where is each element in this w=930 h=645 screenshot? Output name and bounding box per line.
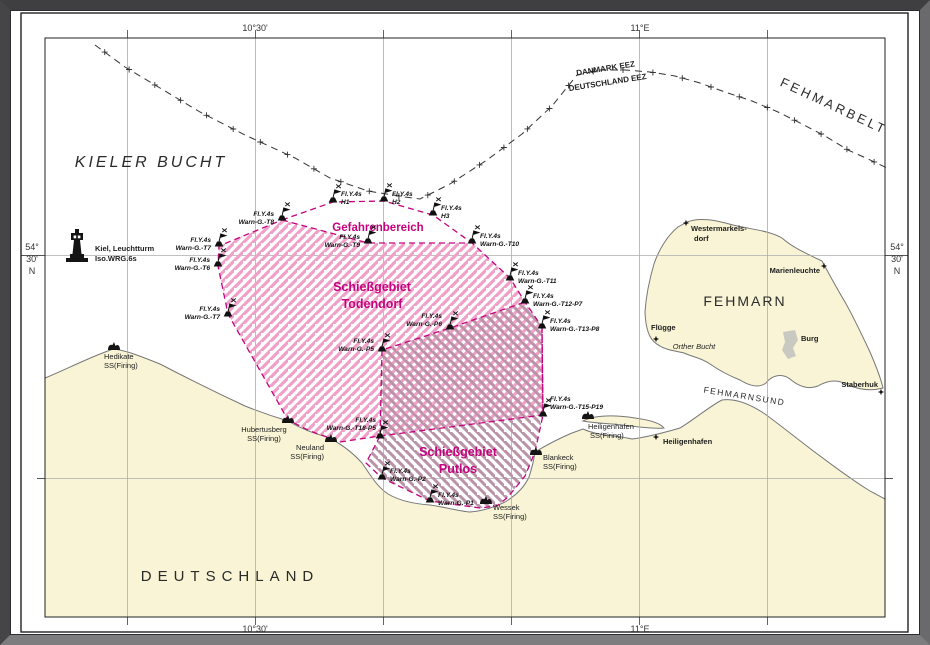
station-type: SS(Firing): [590, 431, 624, 440]
buoy-char: Fl.Y.4s: [441, 205, 462, 212]
buoy-name: Warn-G.-T18-P5: [327, 425, 377, 432]
station-name: Wessek: [493, 503, 520, 512]
buoy-h1: Fl.Y.4s H1: [330, 185, 362, 207]
buoy-name: Warn-G.-T13-P8: [550, 326, 600, 333]
kiel-lighthouse: Kiel, Leuchtturm Iso.WRG.6s: [66, 229, 155, 263]
orther-bucht-label: Orther Bucht: [673, 342, 716, 351]
buoy-char: Fl.Y.4s: [189, 257, 210, 264]
station-name: Hedikate: [104, 352, 134, 361]
station-type: SS(Firing): [104, 361, 138, 370]
todendorf-label-2: Todendorf: [342, 297, 404, 311]
buoy-t12-p7: Fl.Y.4s Warn-G.-T12-P7: [522, 286, 583, 309]
buoy-char: Fl.Y.4s: [341, 191, 362, 198]
buoy-h2: Fl.Y.4s H2: [381, 184, 413, 207]
nautical-chart: DANMARK EEZ DEUTSCHLAND EEZ 10°30' 11°E …: [0, 0, 930, 645]
buoy-h3: Fl.Y.4s H3: [430, 198, 462, 221]
buoy-char: Fl.Y.4s: [550, 396, 571, 403]
buoy-name: Warn-G.-P2: [390, 476, 426, 483]
buoy-name: Warn-G.-T9: [325, 242, 361, 249]
station-name: Hubertusberg: [241, 425, 286, 434]
buoy-t13-p8: Fl.Y.4s Warn-G.-T13-P8: [539, 311, 600, 334]
station-type: SS(Firing): [493, 512, 527, 521]
lat-label-left-min: 30': [26, 254, 38, 264]
station-name: Neuland: [296, 443, 324, 452]
buoy-name: Warn-G.-P5: [338, 346, 374, 353]
todendorf-label-1: Schießgebiet: [333, 280, 412, 294]
buoy-name: Warn-G.-T8: [239, 219, 275, 226]
station-type: SS(Firing): [247, 434, 281, 443]
lighthouse-name: Kiel, Leuchtturm: [95, 244, 155, 253]
lighthouse-icon: [66, 229, 88, 262]
chart-window: DANMARK EEZ DEUTSCHLAND EEZ 10°30' 11°E …: [0, 0, 930, 645]
buoy-char: Fl.Y.4s: [550, 318, 571, 325]
buoy-char: Fl.Y.4s: [355, 417, 376, 424]
buoy-name: Warn-G.-T12-P7: [533, 301, 583, 308]
buoy-name: Warn-G.-T7: [176, 245, 212, 252]
gefahrenbereich-label: Gefahrenbereich: [332, 222, 423, 234]
buoy-name: Warn-G.-T11: [518, 278, 557, 285]
lighthouse-characteristic: Iso.WRG.6s: [95, 254, 137, 263]
town-burg: Burg: [801, 334, 819, 343]
buoy-name: Warn-G.-T6: [175, 265, 211, 272]
town-name: Marienleuchte: [770, 266, 820, 275]
station-hedikate: Hedikate SS(Firing): [104, 342, 138, 370]
lon-label-bottom-1: 10°30': [242, 624, 268, 634]
lat-label-right-min: 30': [891, 254, 903, 264]
buoy-name: Warn-G.-T7: [185, 314, 221, 321]
buoy-t15-p19: Fl.Y.4s Warn-G.-T15-P19: [540, 396, 604, 416]
buoy-name: Warn-G.-T15-P19: [550, 404, 603, 411]
putlos-label-2: Putlos: [439, 462, 477, 476]
buoy-char: Fl.Y.4s: [438, 492, 459, 499]
buoy-char: Fl.Y.4s: [353, 338, 374, 345]
buoy-name: Warn-G.-T10: [480, 241, 519, 248]
buoy-char: Fl.Y.4s: [392, 191, 413, 198]
buoy-char: Fl.Y.4s: [390, 468, 411, 475]
station-heiligenhafen: Heiligenhafen SS(Firing): [582, 411, 634, 440]
kieler-bucht-label: KIELER BUCHT: [75, 154, 227, 171]
buoy-t11: Fl.Y.4s Warn-G.-T11: [507, 263, 557, 286]
buoy-char: Fl.Y.4s: [533, 293, 554, 300]
buoy-char: Fl.Y.4s: [480, 233, 501, 240]
town-name: Burg: [801, 334, 819, 343]
lon-label-bottom-2: 11°E: [631, 624, 650, 634]
buoy-char: Fl.Y.4s: [253, 211, 274, 218]
station-name: Heiligenhafen: [588, 422, 634, 431]
lat-label-left-deg: 54°: [25, 242, 39, 252]
station-type: SS(Firing): [543, 462, 577, 471]
buoy-char: Fl.Y.4s: [518, 270, 539, 277]
buoy-char: Fl.Y.4s: [199, 306, 220, 313]
fehmarn-label: FEHMARN: [703, 293, 786, 309]
buoy-name: H2: [392, 199, 401, 206]
buoy-name: H3: [441, 213, 450, 220]
buoy-char: Fl.Y.4s: [421, 313, 442, 320]
buoy-name: Warn-G.-P1: [438, 500, 474, 507]
eez-boundary: DANMARK EEZ DEUTSCHLAND EEZ: [95, 45, 887, 199]
town-name: Flügge: [651, 323, 676, 332]
buoy-name: H1: [341, 199, 350, 206]
putlos-label-1: Schießgebiet: [419, 445, 498, 459]
buoy-name: Warn-G.-P6: [406, 321, 442, 328]
fehmarbelt-label: FEHMARBELT: [778, 75, 890, 138]
buoy-char: Fl.Y.4s: [190, 237, 211, 244]
lat-label-right-hem: N: [894, 266, 901, 276]
lat-label-right-deg: 54°: [890, 242, 904, 252]
town-name: Westermarkels-: [691, 224, 747, 233]
lon-label-top-2: 11°E: [631, 23, 650, 33]
lon-label-top-1: 10°30': [242, 23, 268, 33]
buoy-char: Fl.Y.4s: [339, 234, 360, 241]
lat-label-left-hem: N: [29, 266, 36, 276]
deutschland-label: DEUTSCHLAND: [141, 568, 320, 585]
town-name: Staberhuk: [841, 380, 879, 389]
town-name: dorf: [694, 234, 709, 243]
station-name: Blankeck: [543, 453, 574, 462]
town-staberhuk: Staberhuk: [841, 380, 884, 395]
station-type: SS(Firing): [290, 452, 324, 461]
town-name: Heiligenhafen: [663, 437, 713, 446]
